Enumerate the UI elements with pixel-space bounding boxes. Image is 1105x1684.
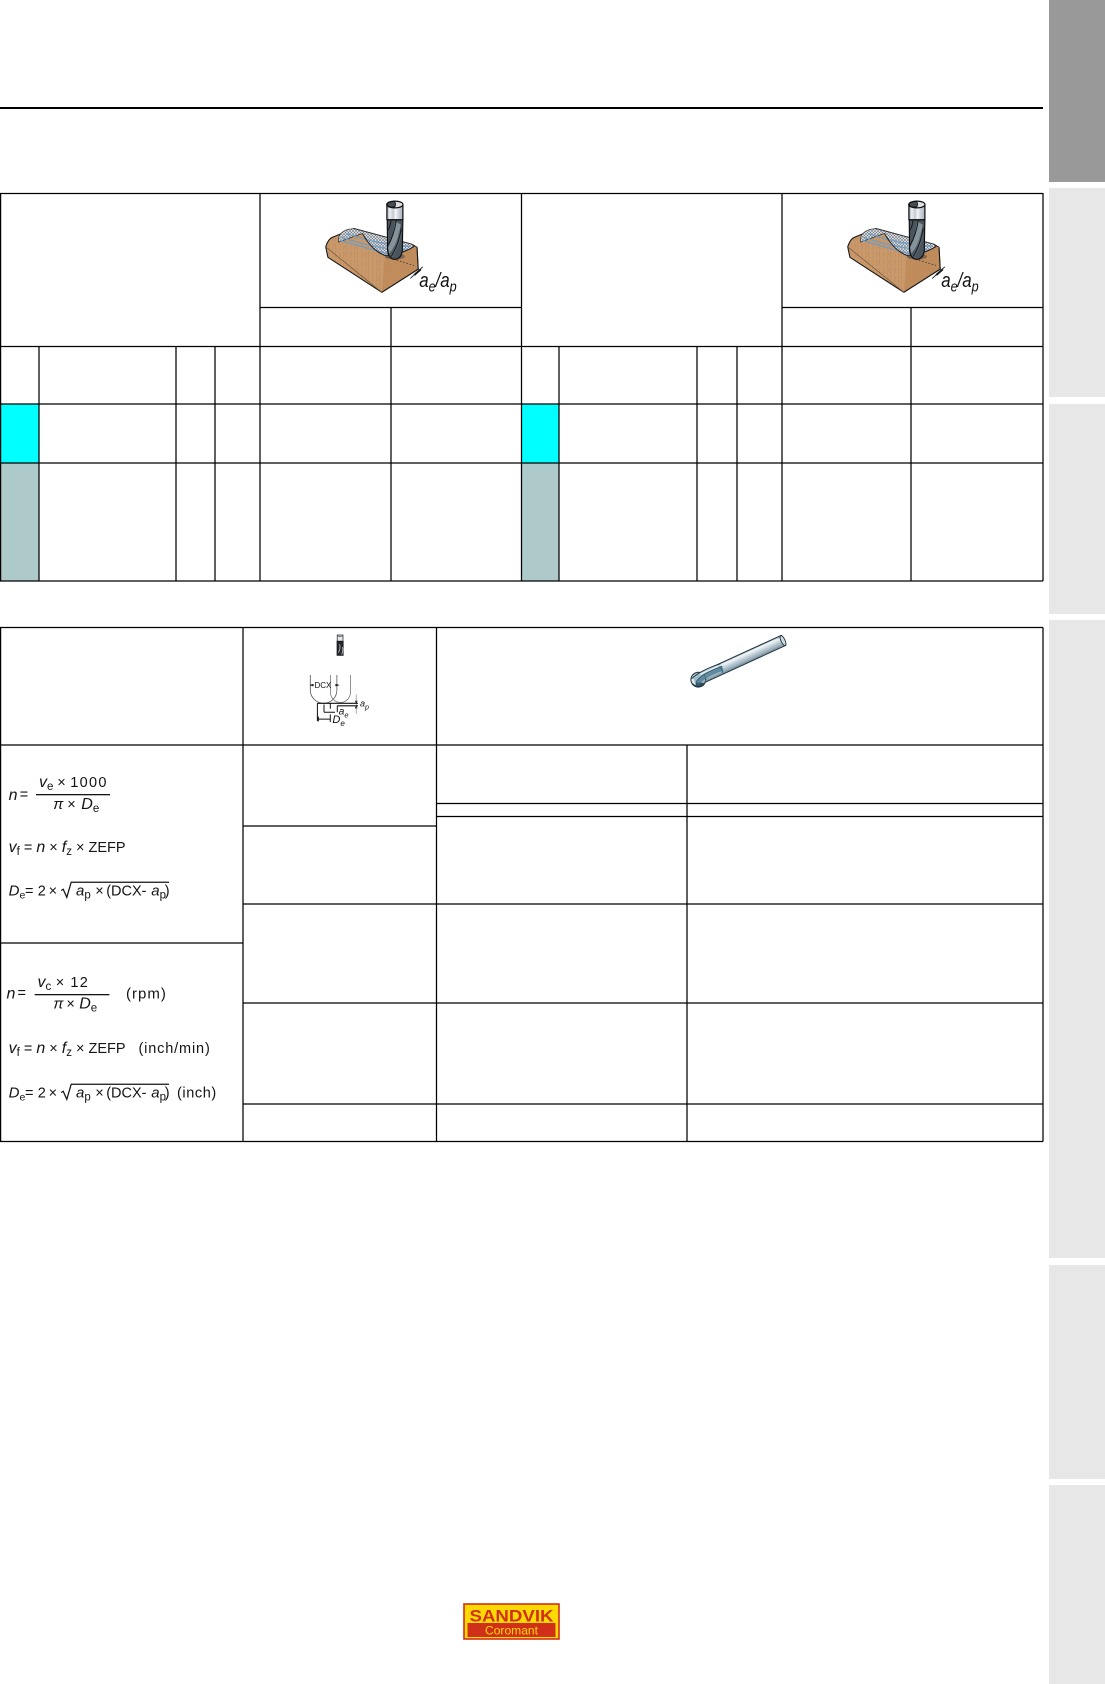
svg-text:=: =: [18, 986, 26, 1002]
svg-text:Coromant: Coromant: [485, 1624, 539, 1638]
svg-text:(inch/min): (inch/min): [139, 1041, 211, 1057]
svg-text:DCX: DCX: [315, 681, 333, 690]
svg-text:=: =: [20, 787, 28, 803]
svg-text:vc×12: vc×12: [38, 974, 90, 993]
svg-text:(inch): (inch): [177, 1086, 217, 1102]
svg-text:(rpm): (rpm): [126, 986, 167, 1003]
svg-text:n: n: [9, 787, 18, 804]
svg-text:n: n: [7, 986, 16, 1003]
svg-text:De=2×: De=2×: [9, 883, 57, 902]
svg-text:De=2×: De=2×: [9, 1085, 57, 1104]
